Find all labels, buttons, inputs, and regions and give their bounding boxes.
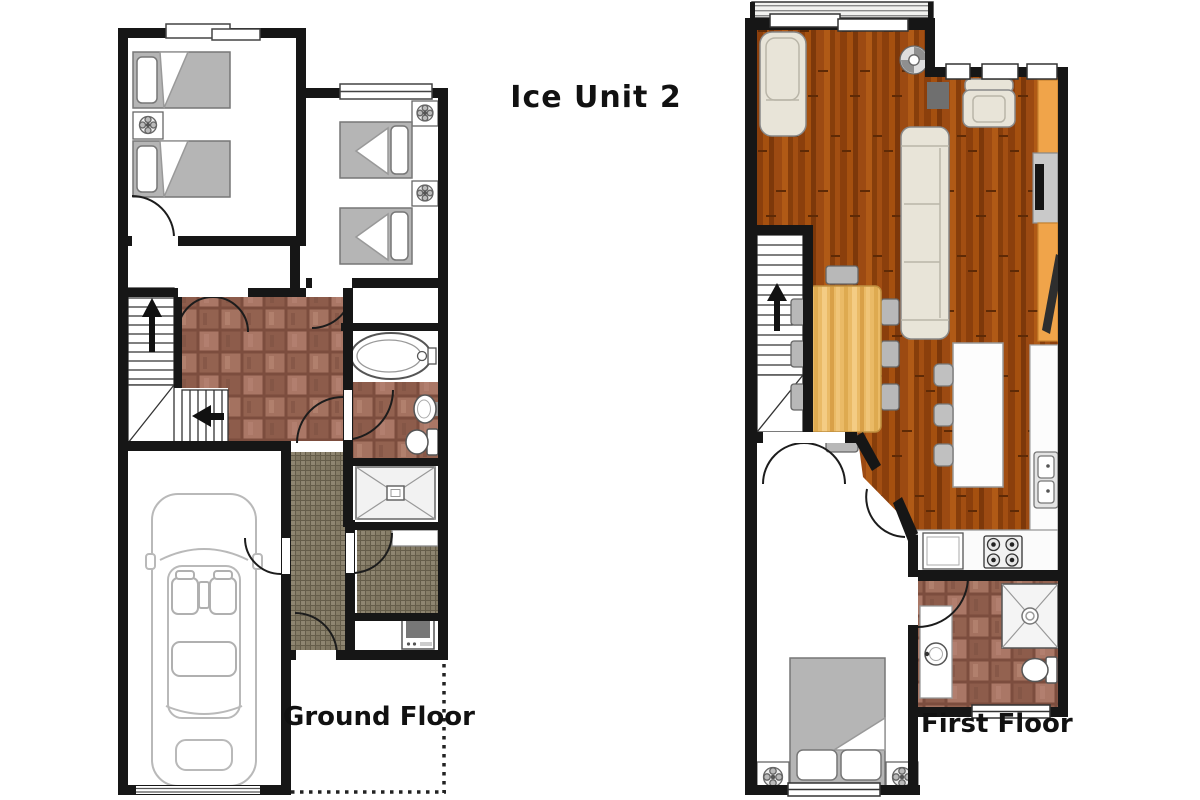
ground-floor-label: Ground Floor: [283, 702, 448, 732]
page-title: Ice Unit 2: [496, 80, 696, 115]
shower-icon: [1002, 584, 1058, 648]
window: [770, 14, 840, 27]
garage-door: [136, 786, 260, 794]
double-bed-icon: [790, 658, 885, 793]
car-icon: [146, 494, 262, 786]
armchair-icon: [963, 79, 1015, 127]
counter-orange-upper: [1038, 80, 1058, 153]
tv-unit: [927, 82, 949, 109]
twin-bed-icon: [133, 52, 230, 108]
bedroom1-furniture: [133, 52, 230, 197]
window: [212, 29, 260, 40]
ground-floor-plan: [105, 18, 455, 800]
bathroom-first: [918, 581, 1058, 707]
sofa-icon: [901, 127, 949, 339]
window: [838, 19, 908, 31]
dining-table-icon: [809, 286, 881, 432]
twin-bed-icon: [340, 122, 412, 178]
wash-basin-icon: [925, 643, 947, 665]
wc-shelf: [392, 530, 438, 546]
floor-plan-page: Ice Unit 2: [0, 0, 1200, 800]
door-arc: [763, 443, 804, 484]
nightstand-fan-icon: [412, 101, 438, 126]
nightstand-fan-icon: [412, 181, 438, 206]
entry-hall-mosaic-floor: [291, 452, 345, 652]
flat-tv: [1035, 164, 1044, 210]
chaise-longue-icon: [760, 32, 806, 136]
nightstand-fan-icon: [133, 112, 163, 139]
bedroom-first-furniture: [757, 658, 918, 793]
door-arc: [132, 196, 174, 238]
twin-bed-icon: [340, 208, 412, 264]
dishwasher: [923, 533, 963, 569]
shower-icon: [356, 467, 435, 519]
double-sink-icon: [1034, 452, 1058, 508]
window: [946, 64, 970, 79]
twin-bed-icon: [133, 141, 230, 197]
washing-machine-icon: [402, 617, 434, 649]
bathtub-icon: [351, 333, 436, 379]
stove-icon: [984, 536, 1022, 568]
bar-stools: [934, 364, 953, 466]
toilet-icon: [1022, 657, 1057, 683]
toilet-icon: [406, 429, 438, 455]
bedroom2-furniture: [340, 101, 438, 264]
first-floor-plan: [738, 0, 1078, 800]
ceiling-fan-icon: [900, 46, 928, 74]
window: [982, 64, 1018, 79]
first-floor-label: First Floor: [921, 709, 1071, 739]
kitchen-island: [953, 343, 1003, 487]
window: [1027, 64, 1057, 79]
